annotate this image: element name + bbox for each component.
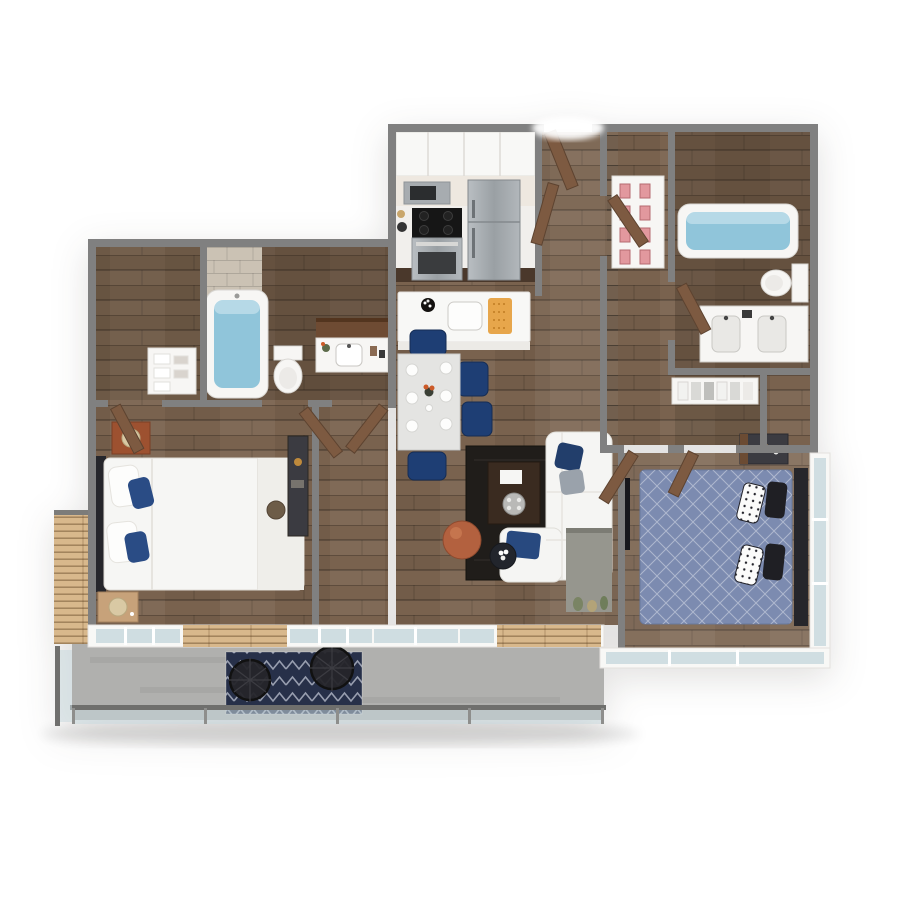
wall-left-south-c	[308, 400, 332, 407]
bed-2-headboard	[794, 468, 808, 626]
faucet	[347, 344, 351, 348]
tray	[503, 493, 525, 515]
glass-pane-south-bed2	[606, 652, 824, 664]
oven-window	[418, 252, 456, 274]
balcony-shadow	[40, 722, 640, 746]
railing-glass-left	[58, 650, 72, 722]
vanity-decor	[742, 310, 752, 318]
bed-1	[104, 458, 304, 590]
wall-hall-east-a	[600, 132, 607, 196]
dining-chair	[462, 402, 492, 436]
slat-cladding-left	[54, 510, 90, 644]
wall-bed2-north-b	[668, 445, 684, 453]
wall-bath2-west-a	[668, 132, 675, 282]
double-vanity	[700, 306, 808, 362]
refrigerator	[468, 180, 520, 280]
toiletries	[379, 350, 385, 358]
wall-bed2-north-a	[600, 445, 624, 453]
glass-panes-south	[96, 629, 494, 643]
linen-closet: Linen Closet	[148, 348, 196, 394]
sink	[712, 316, 740, 352]
sofa-pillow-gray	[558, 468, 585, 495]
plant	[600, 596, 608, 610]
railing-left-rail	[55, 646, 60, 726]
tub-faucet	[235, 294, 240, 299]
dining-chair	[410, 330, 446, 356]
dried-plant	[587, 600, 597, 612]
coffee-maker	[397, 222, 407, 232]
dining-chair	[408, 452, 446, 480]
faucet	[724, 316, 728, 320]
toiletries	[370, 346, 377, 356]
bathtub-2	[678, 204, 798, 258]
wall-hall-east-b	[600, 256, 607, 453]
wall-closet-east	[760, 375, 767, 453]
wall-north-left-wing	[88, 239, 392, 247]
toilet-tank	[274, 346, 302, 360]
flowers	[499, 551, 504, 556]
vanity-nook	[316, 318, 388, 372]
book	[500, 470, 522, 484]
slat-panel-south-2	[497, 625, 601, 647]
plant	[573, 597, 583, 611]
pillow-dark	[764, 481, 788, 519]
wall-west	[88, 239, 96, 644]
bathtub	[206, 290, 268, 398]
desk-stool	[267, 501, 285, 519]
slat-lines	[54, 514, 90, 644]
wall-north-right-wing	[592, 124, 818, 132]
floor-plan-canvas: Balcony	[0, 0, 900, 900]
counter-jar	[397, 210, 405, 218]
terracotta-pouf	[443, 521, 481, 559]
dining-chair	[458, 362, 488, 396]
microwave-window	[410, 186, 436, 200]
kitchen: Kitchen	[396, 132, 535, 350]
side-table	[490, 543, 516, 569]
upper-cabinets	[396, 132, 535, 176]
wall-kitchen-west	[388, 124, 396, 408]
wall-north-kitchen	[388, 124, 544, 132]
slat-panel-south-1	[183, 625, 287, 647]
coffee-table	[488, 462, 540, 524]
nightstand-south	[98, 592, 138, 622]
oven-handle	[416, 242, 458, 246]
wall-bath1-west	[200, 247, 207, 400]
media-accent-wall	[566, 528, 612, 612]
toilet	[274, 346, 302, 393]
desk-books	[291, 480, 304, 488]
table-lamp	[109, 598, 127, 616]
toilet-tank	[792, 264, 808, 302]
glass-pane-east	[814, 458, 826, 646]
cooktop	[412, 208, 462, 238]
bed-2	[640, 468, 808, 626]
entry-light-glow	[532, 116, 604, 140]
walk-in-closet: Walk-in Closet	[672, 378, 758, 404]
sink	[758, 316, 786, 352]
range	[412, 208, 462, 280]
island-sink	[448, 302, 482, 330]
wall-left-south-a	[88, 400, 108, 407]
gold-vase	[294, 458, 302, 466]
faucet	[770, 316, 774, 320]
wall-bath2-south	[668, 368, 818, 375]
wall-left-south-b	[162, 400, 262, 407]
wall-east	[810, 124, 818, 453]
wall-bed2-north-c	[736, 445, 818, 453]
pillow-dark	[762, 543, 786, 581]
hallway-right: Hallway	[612, 176, 664, 268]
slat-cap	[54, 510, 90, 515]
sofa-pillow-navy	[554, 442, 585, 473]
floor-plan-3d-render: Balcony	[0, 0, 900, 900]
